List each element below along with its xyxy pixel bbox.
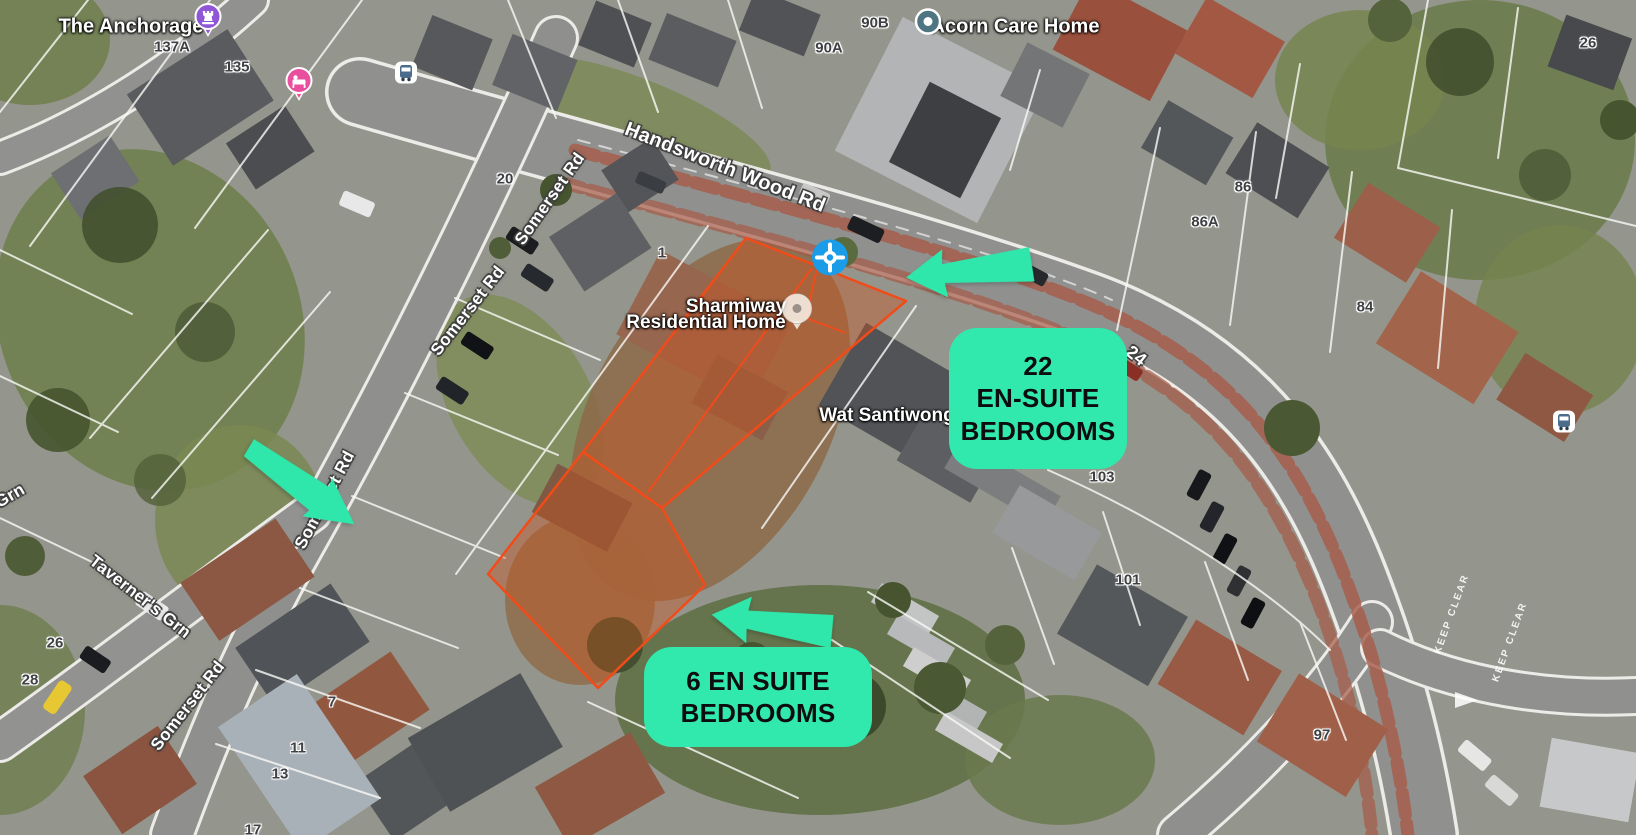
badge-22-line3: BEDROOMS	[961, 415, 1116, 448]
map-viewport[interactable]: Handsworth Wood Rd Somerset Rd Somerset …	[0, 0, 1636, 835]
house-number-7: 7	[328, 694, 336, 711]
house-number-28: 28	[22, 672, 39, 689]
house-number-1: 1	[658, 245, 666, 262]
lodging-marker-icon[interactable]	[281, 63, 317, 114]
poi-dot-marker-icon[interactable]	[913, 7, 943, 42]
house-number-135: 135	[224, 59, 249, 76]
badge-22-line2: EN-SUITE	[977, 382, 1100, 415]
castle-marker-icon[interactable]	[190, 0, 226, 50]
house-number-103: 103	[1089, 469, 1114, 486]
house-number-26-bottom-left: 26	[47, 635, 64, 652]
house-number-84: 84	[1357, 299, 1374, 316]
house-number-90b: 90B	[861, 15, 889, 32]
bus-stop-icon[interactable]	[1552, 410, 1576, 439]
house-number-11: 11	[290, 740, 306, 757]
badge-6-ensuite-bedrooms: 6 EN SUITE BEDROOMS	[644, 647, 872, 747]
badge-6-line2: BEDROOMS	[681, 697, 836, 730]
house-number-17: 17	[245, 822, 262, 835]
place-label-the-anchorage[interactable]: The Anchorage	[59, 16, 204, 39]
badge-22-ensuite-bedrooms: 22 EN-SUITE BEDROOMS	[949, 328, 1127, 469]
place-label-sharmiway-line2[interactable]: Residential Home	[626, 312, 785, 334]
place-label-wat-santiwong[interactable]: Wat Santiwong	[819, 405, 954, 427]
house-number-20: 20	[497, 171, 514, 188]
house-number-13: 13	[272, 766, 289, 783]
house-number-86a: 86A	[1191, 214, 1219, 231]
place-pin-icon[interactable]	[779, 291, 815, 340]
house-number-101: 101	[1115, 572, 1140, 589]
house-number-90a: 90A	[815, 40, 843, 57]
house-number-137a: 137A	[154, 39, 190, 56]
place-label-acorn-care-home[interactable]: Acorn Care Home	[931, 16, 1100, 39]
bus-stop-icon[interactable]	[394, 61, 418, 90]
badge-6-line1: 6 EN SUITE	[686, 665, 830, 698]
house-number-97: 97	[1314, 727, 1331, 744]
badge-22-line1: 22	[1023, 350, 1052, 383]
gps-location-icon[interactable]	[808, 236, 852, 285]
house-number-26-top-right: 26	[1580, 35, 1597, 52]
house-number-86: 86	[1235, 179, 1252, 196]
